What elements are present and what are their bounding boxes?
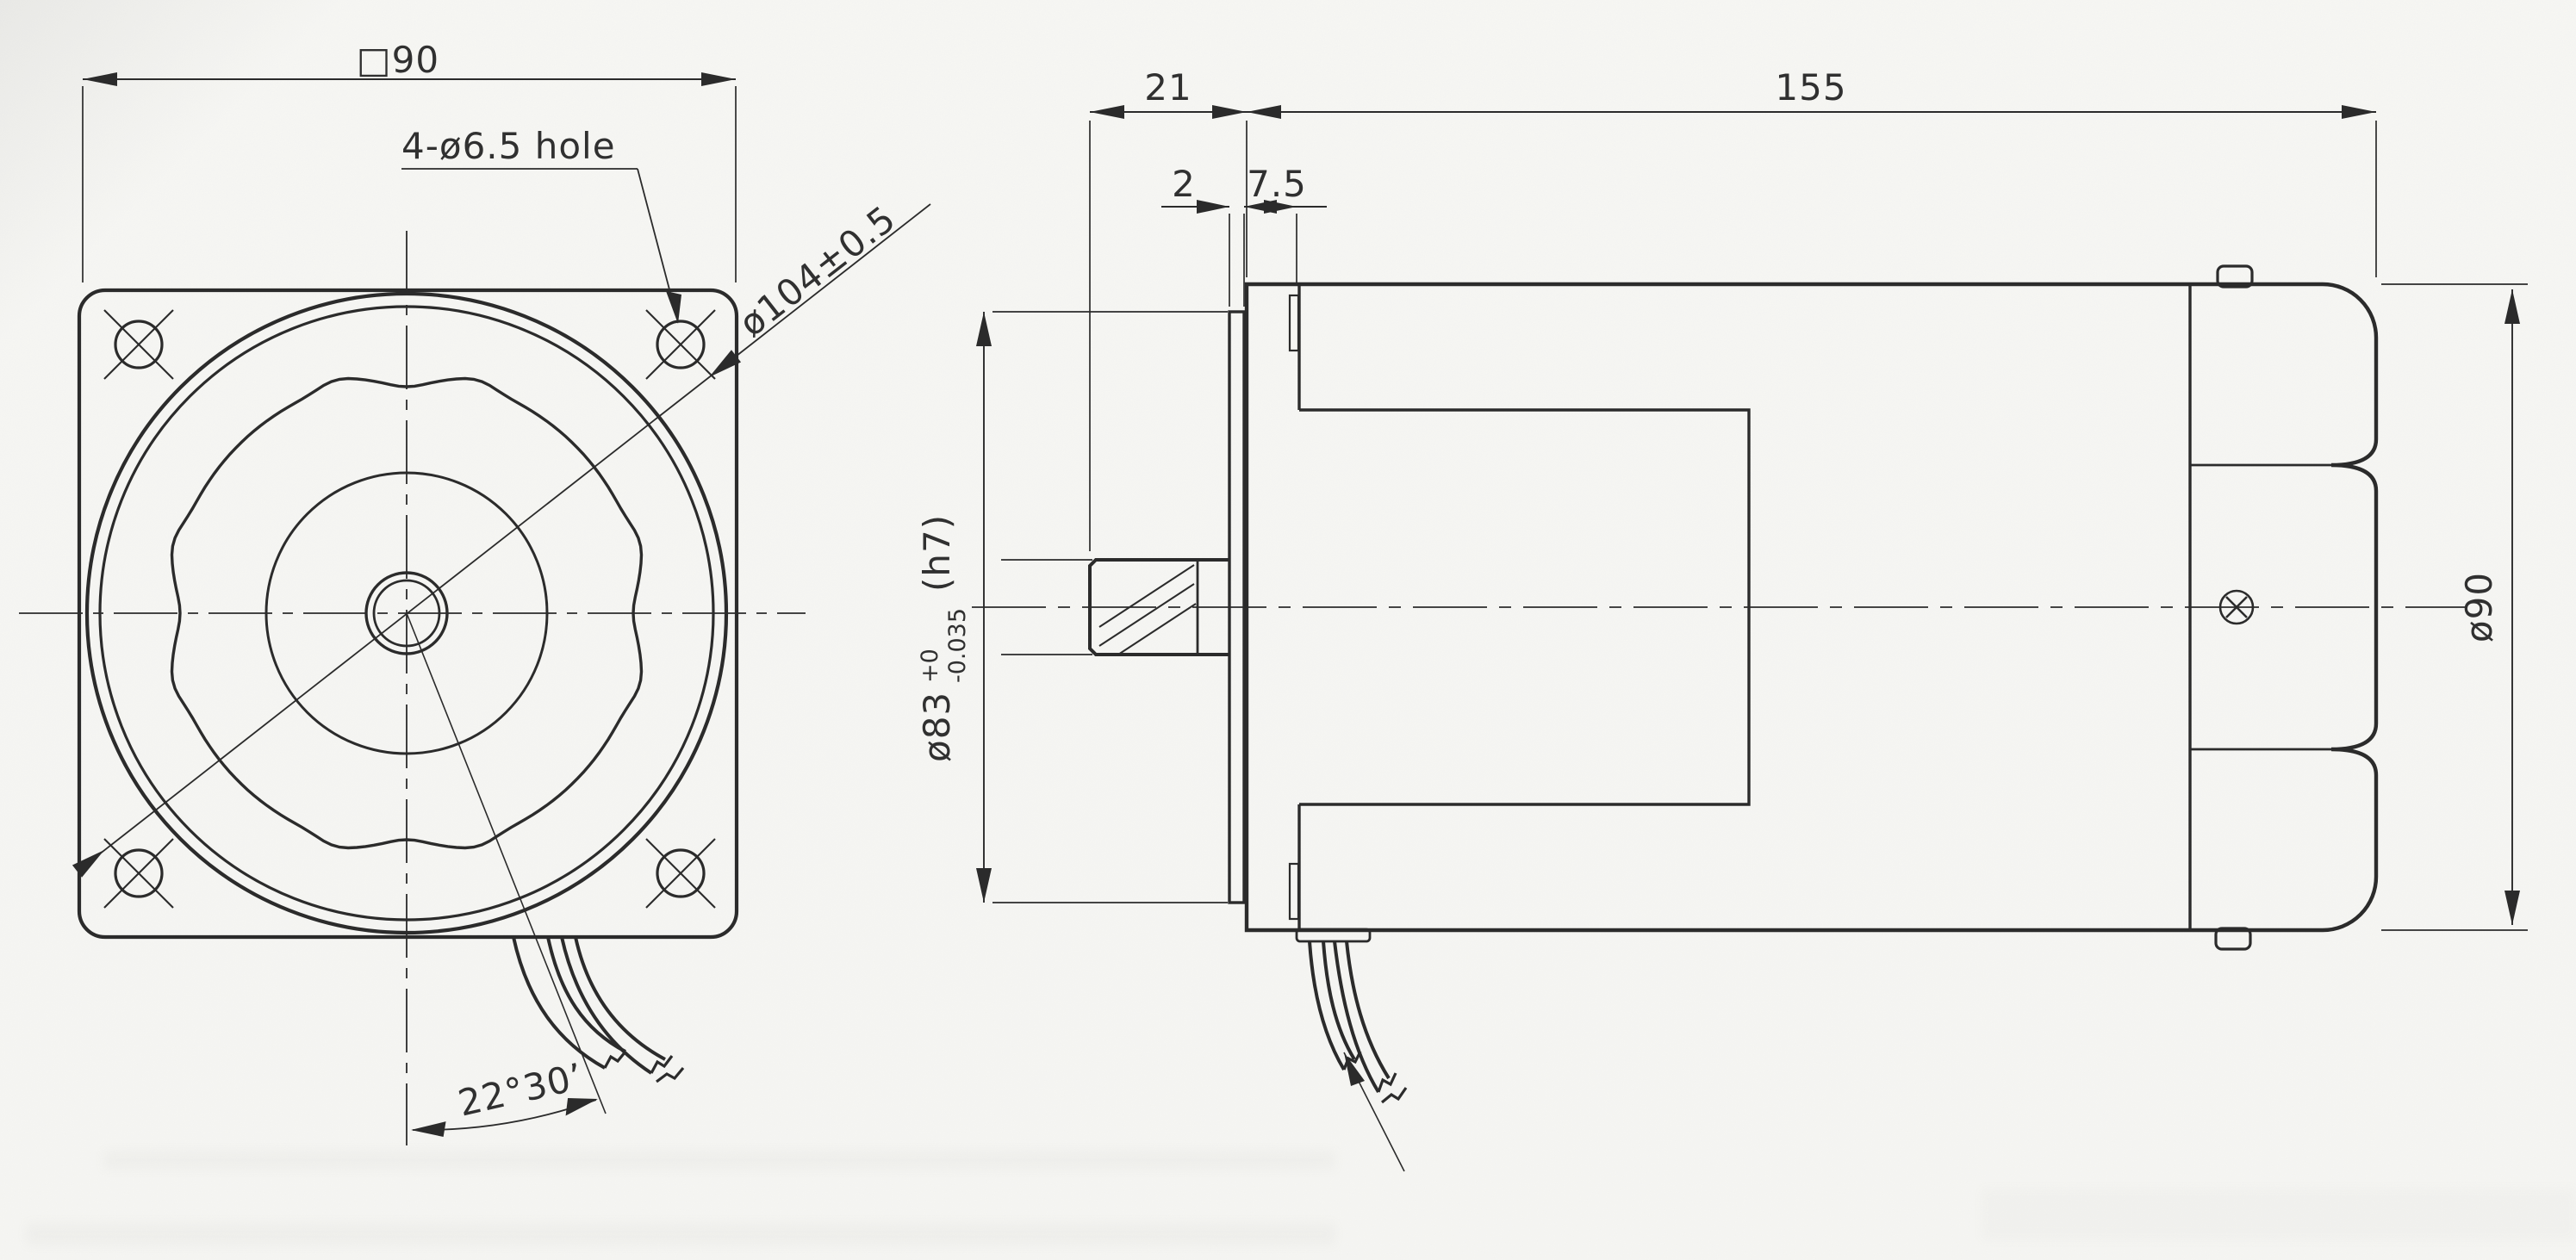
label-square-90: □90 [357, 39, 439, 81]
label-2: 2 [1172, 163, 1196, 205]
label-dia-90-group: ø90 [2458, 572, 2500, 642]
label-7p5: 7.5 [1247, 163, 1307, 205]
label-dia-83-fit: (h7) [916, 514, 958, 592]
label-dia-83-tol-upper: +0 [917, 649, 943, 683]
label-dia-83-main: ø83 [916, 692, 958, 762]
drawing-sheet: □90 4-ø6.5 hole ø104±0.5 22°30’ 21 155 2… [0, 0, 2576, 1260]
label-holes: 4-ø6.5 hole [401, 125, 616, 167]
label-dia-90: ø90 [2458, 572, 2500, 642]
label-dia-83-tol-lower: -0.035 [944, 608, 971, 683]
label-155: 155 [1775, 66, 1846, 109]
technical-drawing: □90 4-ø6.5 hole ø104±0.5 22°30’ 21 155 2… [0, 0, 2576, 1260]
label-21: 21 [1144, 66, 1192, 109]
